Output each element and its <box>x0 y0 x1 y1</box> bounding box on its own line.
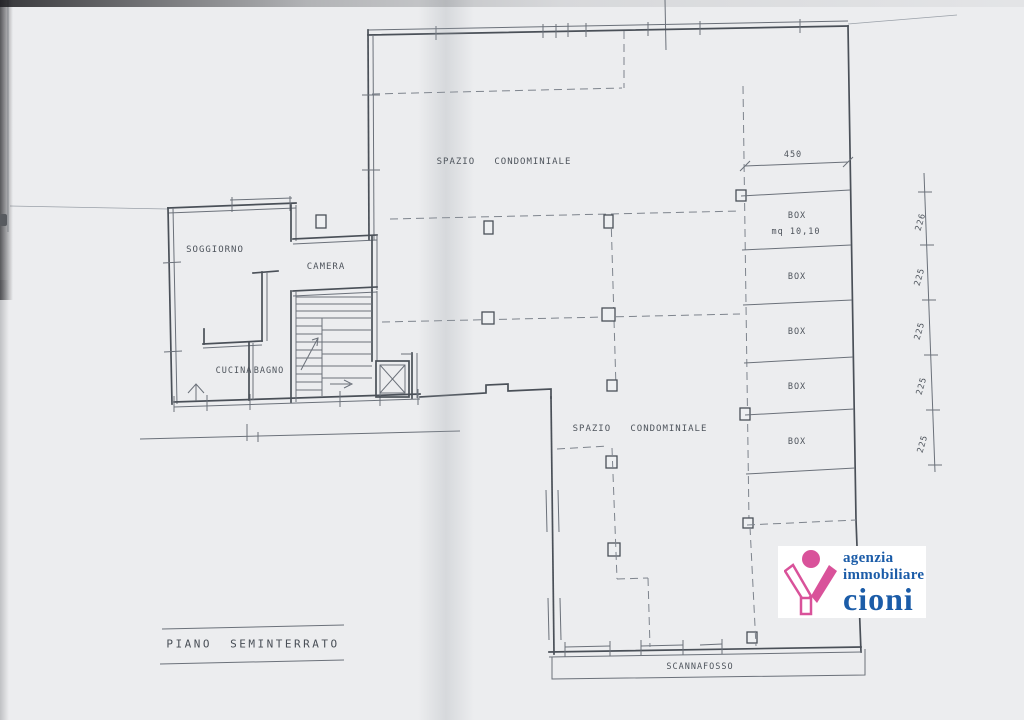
agency-logo-text: agenzia immobiliare cioni <box>843 550 924 614</box>
room-label-camera: CAMERA <box>307 262 346 272</box>
lower-windows <box>546 490 722 657</box>
garage-box-dividers <box>741 190 856 525</box>
room-label-soggiorno: SOGGIORNO <box>186 245 244 255</box>
lower-dashed-grid <box>557 446 756 647</box>
area-label-spazio-condominiale-lower: SPAZIO CONDOMINIALE <box>573 424 708 434</box>
staircase <box>296 297 372 396</box>
scan-stray-lines <box>8 0 957 232</box>
box-1-area: mq 10,10 <box>772 227 821 237</box>
structural-pillars <box>316 190 757 643</box>
box-4-label: BOX <box>788 382 806 392</box>
scan-edge-top <box>0 0 1024 7</box>
entry-arrow <box>188 384 204 401</box>
area-label-scannafosso: SCANNAFOSSO <box>666 662 733 672</box>
scan-edge-left-fade <box>0 280 9 720</box>
agency-logo: agenzia immobiliare cioni <box>778 546 926 618</box>
page-title: PIANO SEMINTERRATO <box>166 638 339 651</box>
elevator-shaft <box>376 361 409 397</box>
logo-line-agenzia: agenzia <box>843 550 924 567</box>
box-5-label: BOX <box>788 437 806 447</box>
box-3-label: BOX <box>788 327 806 337</box>
room-label-bagno: BAGNO <box>254 366 285 376</box>
apartment-walls <box>163 196 420 412</box>
agency-person-icon <box>784 548 840 616</box>
site-lines <box>140 424 460 442</box>
scan-streak-band <box>418 0 474 720</box>
scan-edge-left <box>0 0 13 300</box>
box-2-label: BOX <box>788 272 806 282</box>
logo-line-cioni: cioni <box>843 585 924 614</box>
dimension-450-label: 450 <box>784 150 802 160</box>
room-label-cucina: CUCINA <box>216 366 253 376</box>
scanned-floorplan-page: SOGGIORNO CAMERA CUCINA BAGNO SPAZIO CON… <box>0 0 1024 720</box>
area-label-spazio-condominiale-upper: SPAZIO CONDOMINIALE <box>437 157 572 167</box>
box-1-label: BOX <box>788 211 806 221</box>
scan-blob <box>0 214 7 226</box>
